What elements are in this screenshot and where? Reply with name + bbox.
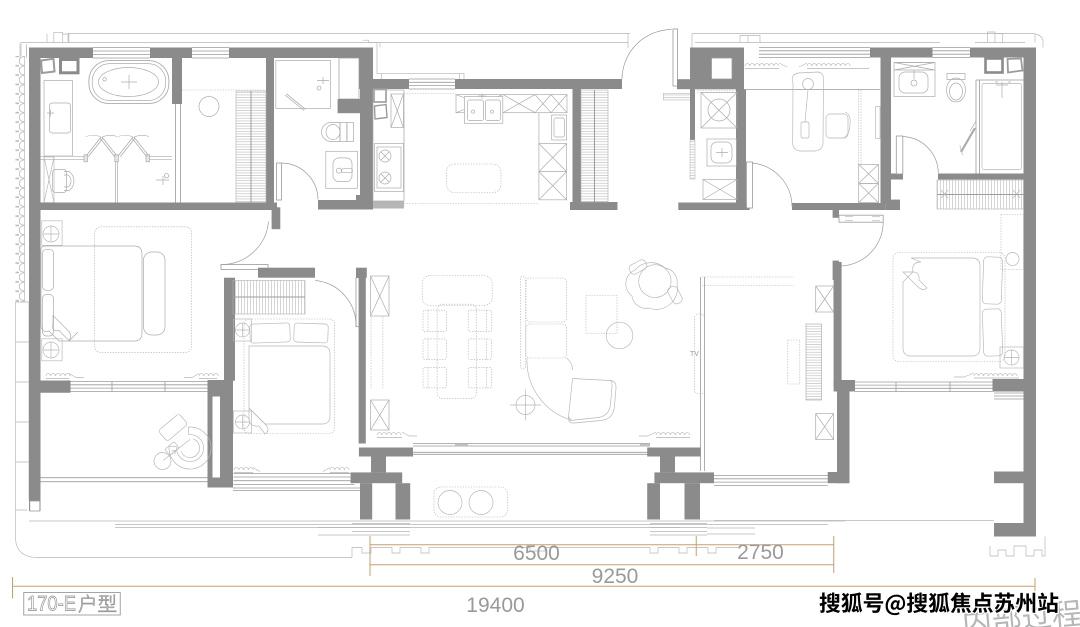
svg-text:9250: 9250 [592,565,639,588]
svg-text:TV: TV [690,351,699,358]
svg-text:2750: 2750 [737,541,784,564]
svg-text:170-E: 170-E [27,592,76,616]
svg-text:6500: 6500 [513,542,560,565]
svg-text:19400: 19400 [466,594,524,617]
